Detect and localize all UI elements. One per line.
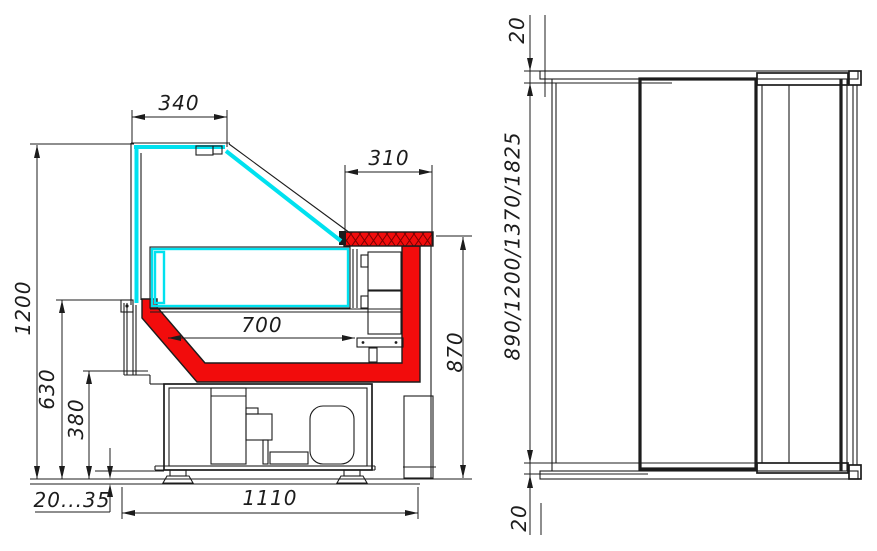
front-view-drawing: [524, 15, 861, 535]
dim-overall-depth: 1110: [240, 487, 300, 509]
drawing-canvas: 340 310 700 1200 630 380 870 20...35 111…: [0, 0, 877, 551]
center-panel: [640, 79, 756, 469]
compressor: [310, 406, 354, 464]
dim-foot-adjust: 20...35: [32, 489, 112, 511]
display-deck-glass: [152, 249, 348, 306]
dim-front-bottom-offset: 20: [508, 498, 530, 538]
dim-top-glass-width: 340: [149, 92, 209, 114]
condenser: [211, 388, 246, 464]
dim-counter-height: 870: [444, 325, 466, 379]
sloped-glass: [226, 151, 341, 241]
dim-front-top-offset: 20: [506, 10, 528, 50]
counter-top: [344, 232, 433, 246]
dim-counter-depth: 310: [359, 147, 419, 169]
technical-drawing: [0, 0, 877, 551]
dim-overall-height: 1200: [12, 276, 34, 340]
dim-mid-height: 630: [36, 362, 58, 416]
dim-front-height-options: 890/1200/1370/1825: [502, 146, 524, 361]
dim-base-height: 380: [65, 392, 87, 446]
dim-display-width: 700: [232, 314, 292, 336]
